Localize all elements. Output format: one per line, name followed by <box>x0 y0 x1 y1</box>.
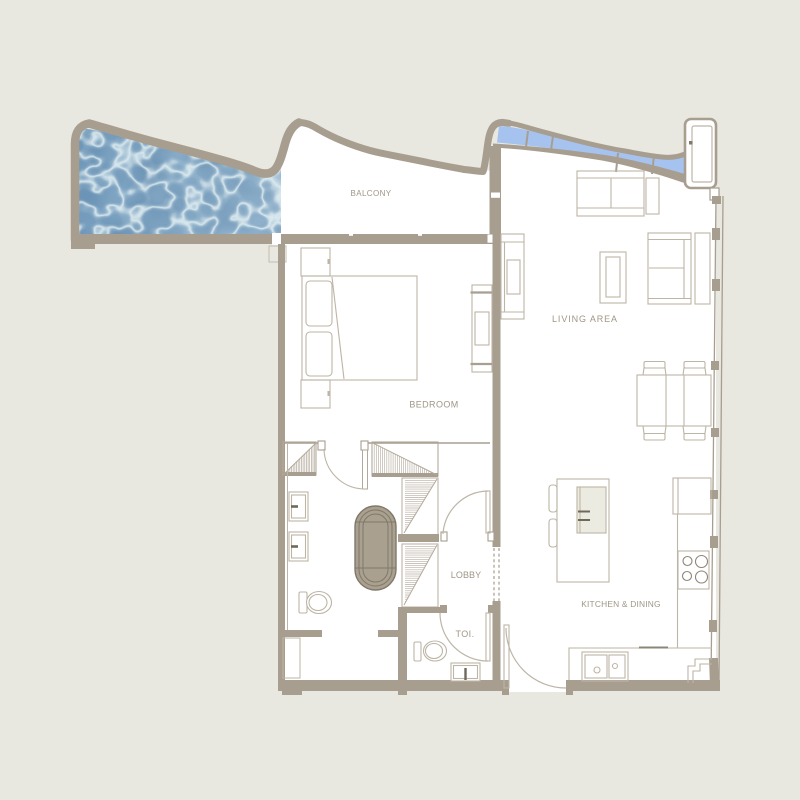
svg-text:LIVING AREA: LIVING AREA <box>552 314 618 324</box>
svg-text:BALCONY: BALCONY <box>350 189 391 198</box>
svg-text:BEDROOM: BEDROOM <box>409 400 458 410</box>
svg-text:LOBBY: LOBBY <box>451 570 482 580</box>
svg-text:TOI.: TOI. <box>456 629 475 639</box>
svg-text:KITCHEN & DINING: KITCHEN & DINING <box>581 599 661 609</box>
